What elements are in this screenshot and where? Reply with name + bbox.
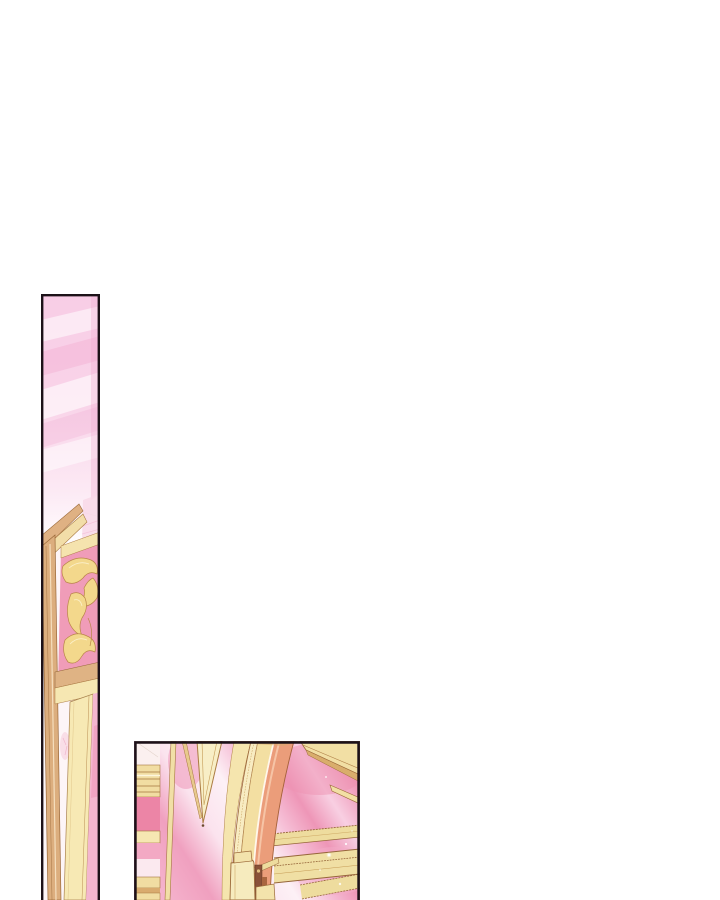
arch-illustration (134, 741, 360, 900)
banded-column (136, 741, 160, 900)
comic-panel-arch (134, 741, 360, 900)
faint-pink-marks (60, 732, 70, 760)
tall-strip-illustration (41, 294, 100, 900)
comic-page (0, 0, 720, 900)
comic-panel-tall-strip (41, 294, 100, 900)
